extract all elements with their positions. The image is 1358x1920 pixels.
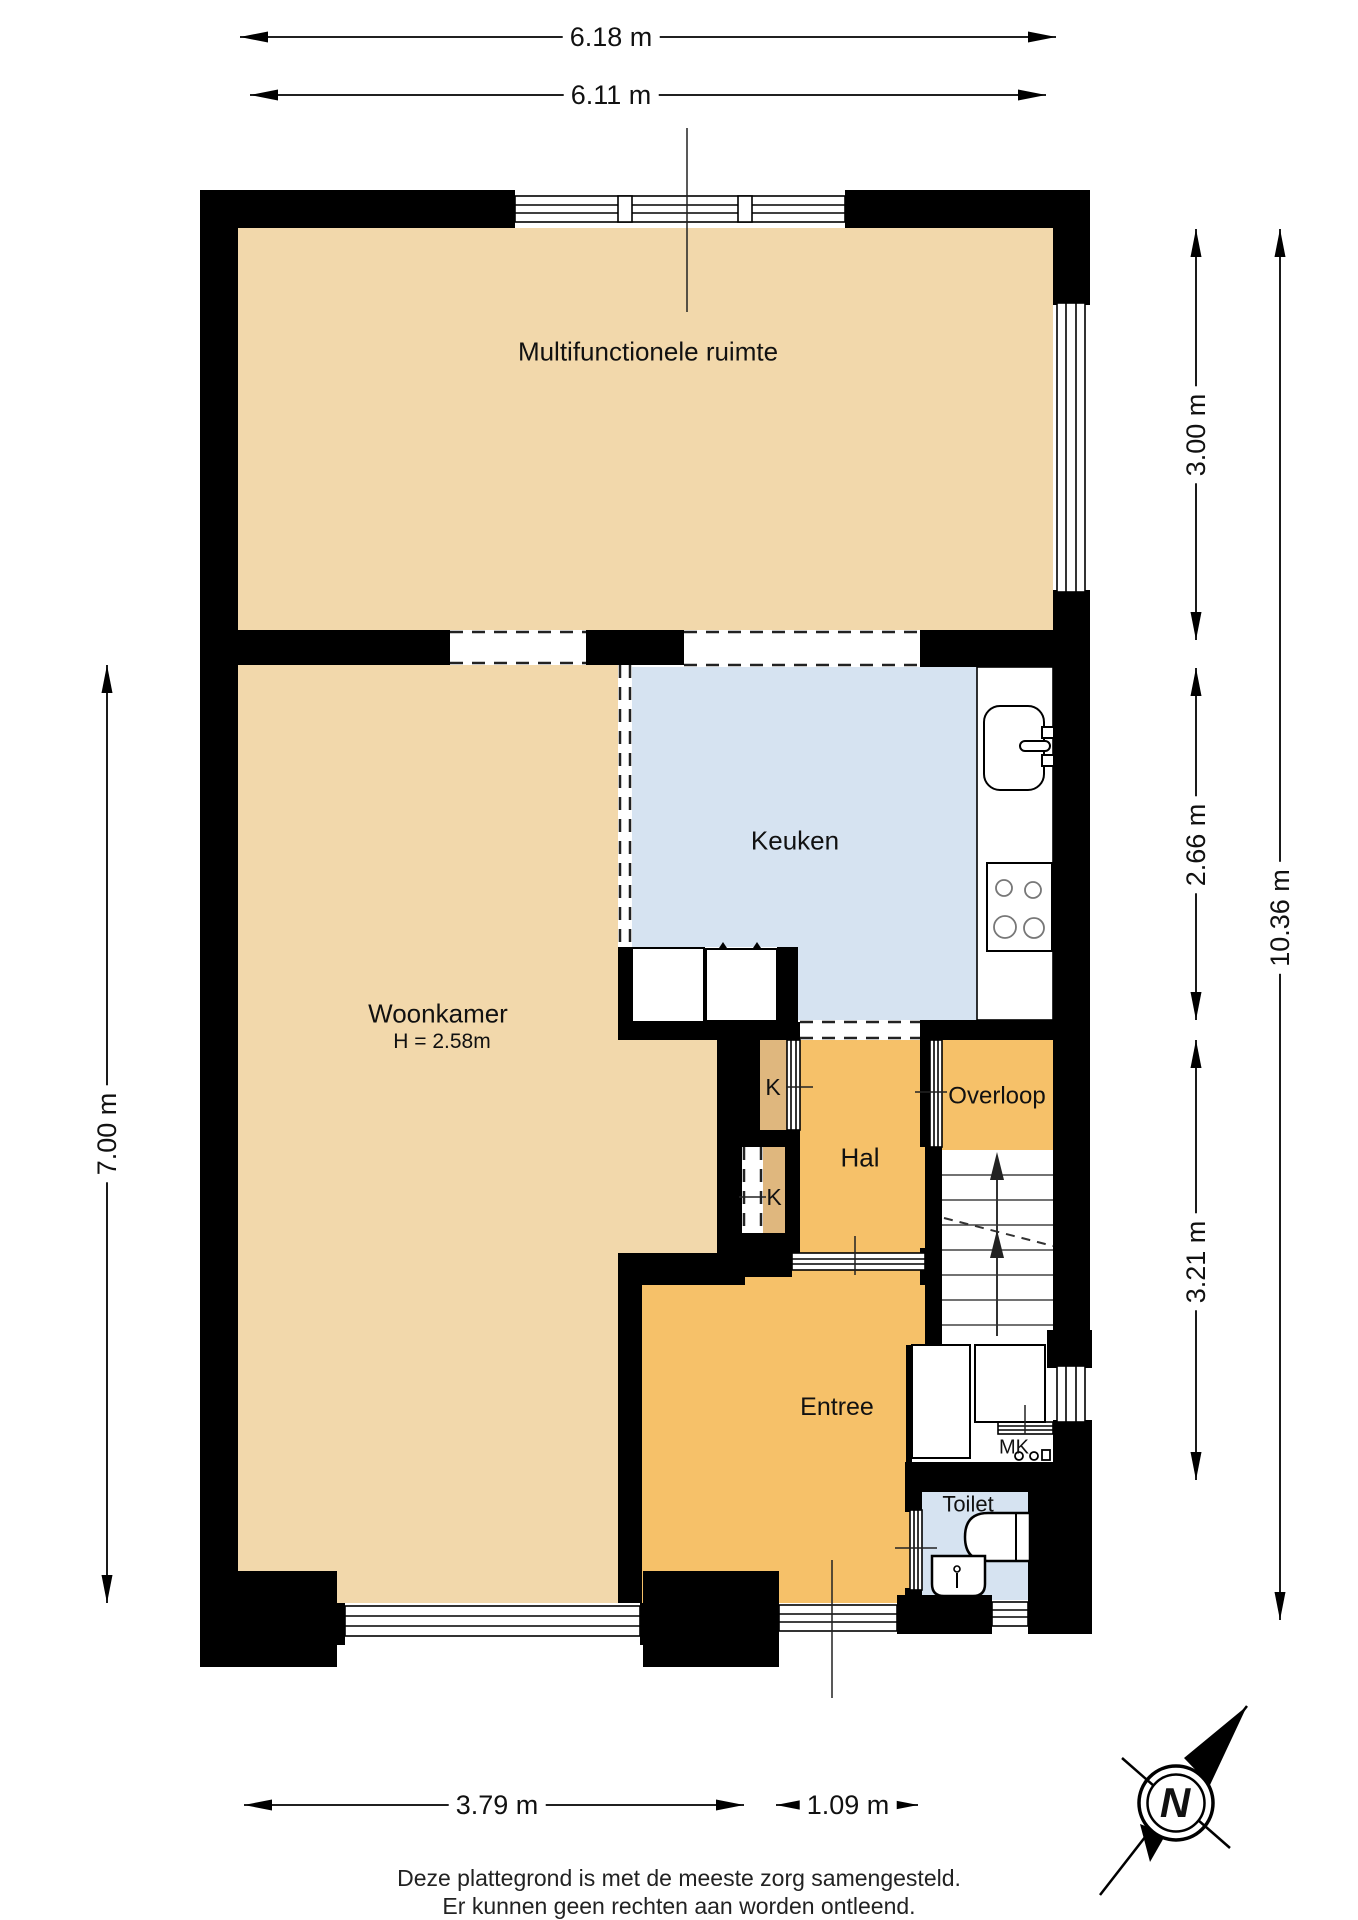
faucet-lever-icon (1020, 741, 1050, 751)
window-woonkamer-bottom (345, 1606, 640, 1636)
floor-plan-drawing (0, 0, 1358, 1920)
footer-disclaimer-line1: Deze plattegrond is met de meeste zorg s… (397, 1866, 961, 1890)
wall-corner-block-left (200, 1571, 337, 1667)
label-kast-onder: K (766, 1185, 781, 1209)
hand-basin-icon (932, 1556, 985, 1596)
wall-right-below-window (1053, 1420, 1092, 1464)
wall-closet2-right (785, 1147, 800, 1233)
opening-closet2 (742, 1147, 763, 1233)
label-hal: Hal (840, 1144, 879, 1171)
wall-right-stairs (1047, 1330, 1092, 1368)
wall-left (200, 190, 238, 1603)
label-toilet: Toilet (942, 1492, 993, 1515)
meter-icon (1030, 1452, 1038, 1460)
meter-icon (1042, 1450, 1050, 1460)
wall-right-upper (1053, 190, 1090, 305)
dim-top-inner: 6.11 m (564, 81, 659, 109)
wall-bottom-3 (897, 1595, 992, 1634)
door-hal-entree (792, 1253, 925, 1270)
compass-north-label: N (1160, 1781, 1190, 1825)
wall-divider-1 (238, 630, 450, 665)
room-multifunctionele-ruimte (238, 228, 1053, 630)
wall-toilet-top (905, 1462, 1092, 1492)
label-keuken: Keuken (751, 827, 839, 854)
appliance-icon (706, 949, 777, 1021)
opening-woonkamer-keuken (618, 665, 632, 947)
compass-tick-nw (1122, 1758, 1154, 1786)
door-toilet (910, 1510, 922, 1590)
wall-toilet-door-top (905, 1490, 922, 1512)
wall-hal-door-left (745, 1253, 792, 1277)
wall-bottom-1 (337, 1603, 345, 1645)
room-woonkamer-ext (618, 1040, 717, 1253)
door-closet1 (787, 1040, 800, 1130)
window-top (515, 196, 845, 222)
dim-left: 7.00 m (93, 1086, 121, 1183)
label-kast-boven: K (765, 1075, 780, 1099)
window-right-stairs (1057, 1366, 1085, 1422)
room-keuken-ext (798, 947, 977, 1020)
label-woonkamer-height: H = 2.58m (393, 1031, 490, 1053)
wall-stairs-left (925, 1147, 942, 1345)
door-front (779, 1605, 897, 1631)
basin-tap-icon (954, 1566, 960, 1572)
cooktop-icon (987, 863, 1052, 951)
floor-plan-page: Multifunctionele ruimte Woonkamer H = 2.… (0, 0, 1358, 1920)
wall-overloop-top (920, 1020, 1053, 1040)
label-overloop: Overloop (948, 1083, 1045, 1108)
dim-bottom-right: 1.09 m (800, 1791, 897, 1819)
label-entree: Entree (800, 1394, 874, 1420)
wall-corner-block-right (1028, 1490, 1092, 1634)
wall-entree-left (618, 1275, 642, 1603)
opening-keuken-hal (800, 1020, 920, 1040)
dim-right-lower: 3.21 m (1182, 1214, 1210, 1311)
understairs-closet (912, 1345, 970, 1458)
wall-closet1-left (742, 1040, 760, 1130)
dim-right-upper: 3.00 m (1182, 387, 1210, 484)
door-hal-overloop (930, 1040, 942, 1147)
wall-keuken-left (618, 947, 632, 1022)
wall-appliance-right (777, 947, 798, 1022)
opening-divider-right (684, 630, 920, 667)
faucet-knob-icon (1042, 755, 1054, 766)
appliance-icon (632, 948, 704, 1022)
wall-closet1-bottom (742, 1130, 800, 1147)
wall-woonkamer-hal (717, 1040, 742, 1253)
wall-closet2-bottom (742, 1233, 800, 1253)
label-woonkamer: Woonkamer (368, 1000, 508, 1027)
wall-divider-3 (920, 630, 1053, 667)
wall-divider-2 (586, 630, 684, 665)
wall-pier-block (643, 1571, 779, 1667)
dim-right-middle: 2.66 m (1182, 797, 1210, 894)
room-woonkamer (238, 665, 618, 1603)
opening-divider-left (450, 630, 586, 665)
room-keuken (632, 667, 977, 947)
label-meterkast: MK (999, 1438, 1029, 1459)
dim-top-outer: 6.18 m (563, 23, 660, 51)
label-multifunctionele-ruimte: Multifunctionele ruimte (518, 338, 778, 365)
room-entree (642, 1270, 925, 1603)
window-toilet (992, 1602, 1028, 1626)
dim-bottom-left: 3.79 m (449, 1791, 546, 1819)
dim-right-total: 10.36 m (1266, 862, 1294, 974)
toilet-icon (965, 1513, 1030, 1561)
faucet-knob-icon (1042, 727, 1054, 738)
footer-disclaimer-line2: Er kunnen geen rechten aan worden ontlee… (442, 1894, 915, 1918)
wall-right-middle (1053, 590, 1090, 1330)
compass-tick-se (1198, 1820, 1230, 1848)
wall-counter-band (618, 1022, 800, 1040)
window-right-upper (1057, 303, 1085, 592)
understairs-closet (975, 1345, 1045, 1422)
wall-top-left (200, 190, 515, 228)
